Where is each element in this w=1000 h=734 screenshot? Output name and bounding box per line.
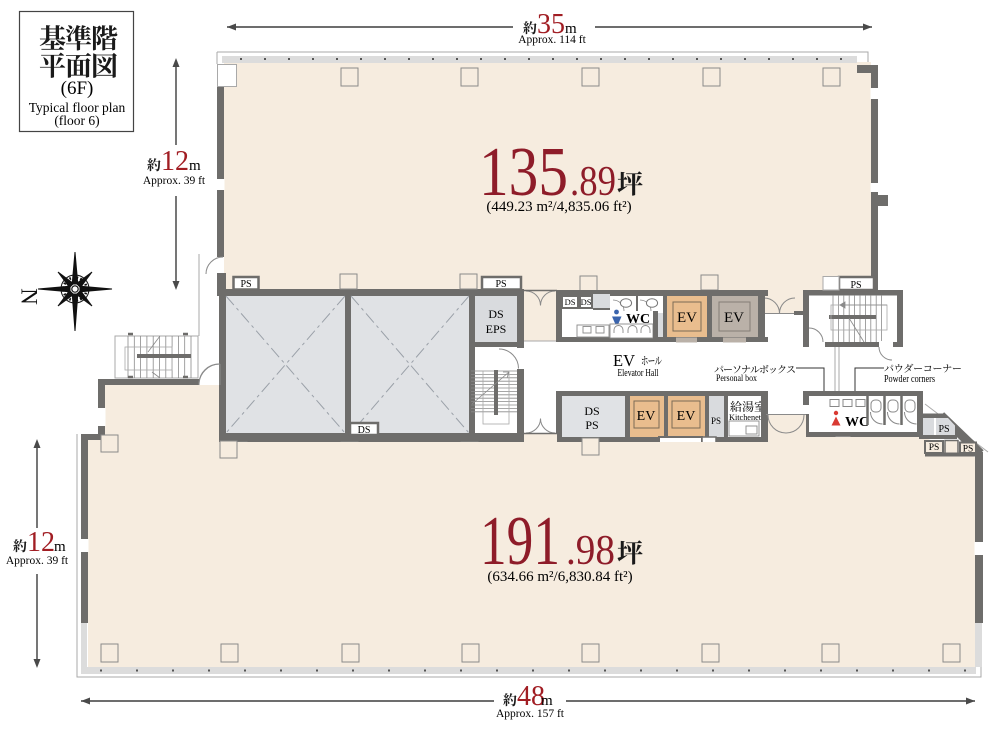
- svg-text:m: m: [541, 693, 553, 709]
- svg-text:WC: WC: [845, 415, 869, 430]
- svg-text:PS: PS: [585, 418, 598, 432]
- svg-text:PS: PS: [938, 424, 949, 435]
- svg-text:PS: PS: [240, 279, 251, 290]
- svg-text:Elevator Hall: Elevator Hall: [618, 368, 659, 379]
- svg-text:(449.23 m²/4,835.06 ft²): (449.23 m²/4,835.06 ft²): [486, 199, 631, 215]
- svg-text:PS: PS: [929, 443, 940, 453]
- svg-text:EV: EV: [724, 310, 744, 326]
- svg-text:(634.66 m²/6,830.84 ft²): (634.66 m²/6,830.84 ft²): [487, 569, 632, 585]
- svg-text:DS: DS: [488, 307, 503, 321]
- svg-text:Approx. 39 ft: Approx. 39 ft: [6, 555, 69, 567]
- svg-text:DS: DS: [358, 425, 371, 436]
- svg-text:12: 12: [27, 527, 55, 558]
- svg-text:.98: .98: [566, 528, 615, 574]
- svg-text:DS: DS: [565, 297, 576, 307]
- svg-text:(floor 6): (floor 6): [54, 113, 99, 128]
- svg-text:N: N: [17, 288, 42, 305]
- svg-text:(6F): (6F): [61, 78, 94, 99]
- svg-text:12: 12: [161, 146, 189, 177]
- svg-text:Approx. 114 ft: Approx. 114 ft: [518, 34, 586, 46]
- svg-text:m: m: [54, 539, 66, 555]
- svg-text:PS: PS: [495, 279, 506, 290]
- svg-text:EV: EV: [637, 409, 656, 424]
- svg-text:EV: EV: [677, 409, 696, 424]
- svg-text:Powder corners: Powder corners: [884, 374, 935, 385]
- svg-text:Approx. 157 ft: Approx. 157 ft: [496, 708, 565, 720]
- svg-text:DS: DS: [584, 404, 599, 418]
- svg-text:Approx. 39 ft: Approx. 39 ft: [143, 175, 206, 187]
- svg-text:PS: PS: [711, 416, 721, 426]
- svg-text:Personal box: Personal box: [716, 374, 757, 384]
- svg-text:DS: DS: [581, 297, 592, 307]
- svg-text:m: m: [189, 158, 201, 174]
- svg-text:PS: PS: [850, 280, 861, 291]
- svg-text:EPS: EPS: [486, 322, 507, 336]
- svg-text:EV: EV: [677, 310, 697, 326]
